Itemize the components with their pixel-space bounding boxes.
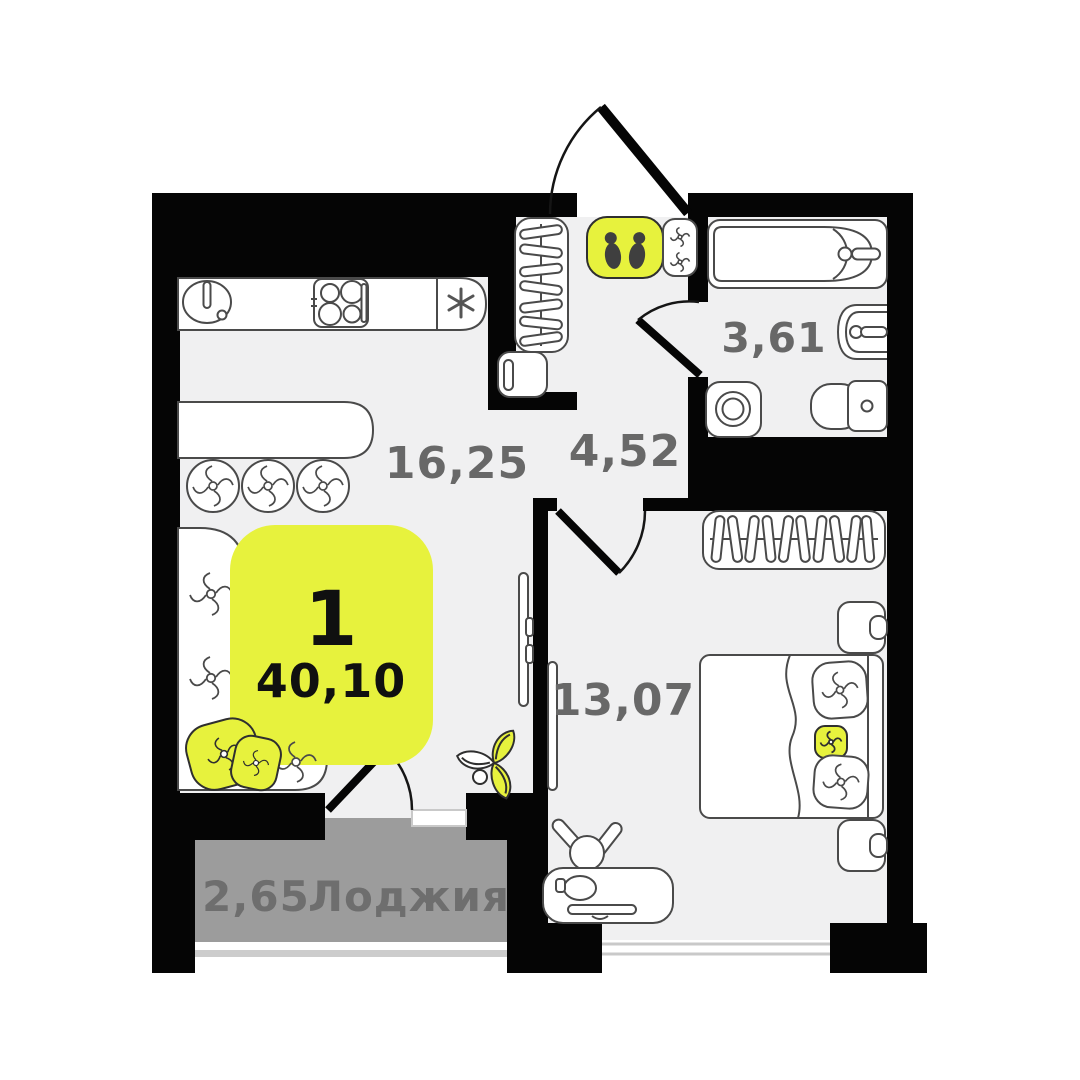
loggia-area-label: 2,65 xyxy=(202,872,310,921)
toilet-icon xyxy=(811,381,887,431)
floor-plan-page: 1 40,10 xyxy=(0,0,1080,1080)
wall-bedroom-bottom-left xyxy=(507,923,602,973)
yellow-bed-pillow-icon xyxy=(815,726,847,758)
living-tv-icon xyxy=(519,573,528,706)
hallway-area-label: 4,52 xyxy=(569,426,682,477)
shelf-icon xyxy=(526,618,533,636)
kitchen-living-area-label: 16,25 xyxy=(385,438,529,489)
bar-table xyxy=(178,402,373,458)
wall-left xyxy=(152,193,180,840)
entry-mat xyxy=(587,217,663,278)
wall-loggia-bedroom-separator xyxy=(507,840,548,930)
wall-bottom-right-pier xyxy=(830,923,927,973)
wall-bedroom-top xyxy=(643,498,887,511)
desk-icon xyxy=(543,868,673,923)
wardrobe-icon xyxy=(703,511,885,569)
coat-closet xyxy=(515,218,568,352)
wall-living-bottom-left xyxy=(152,793,325,840)
bathtub-icon xyxy=(708,220,887,288)
bathroom-area-label: 3,61 xyxy=(721,314,826,362)
nightstand xyxy=(838,820,887,871)
badge-total-area: 40,10 xyxy=(256,654,407,708)
bedroom-area-label: 13,07 xyxy=(551,675,695,726)
floor-plan-svg: 1 40,10 xyxy=(0,0,1080,1080)
dining-bar xyxy=(178,402,373,512)
wall-right xyxy=(887,193,913,923)
bed-icon xyxy=(700,655,883,818)
bar-stools xyxy=(187,460,349,512)
loggia-glazing-line xyxy=(195,950,507,957)
wall-living-bottom-right xyxy=(466,793,533,840)
shoe-bench xyxy=(498,352,547,397)
bedroom-window xyxy=(602,944,830,954)
badge-rooms-count: 1 xyxy=(305,574,358,663)
loggia-window xyxy=(412,810,466,826)
loggia-name-label: Лоджия xyxy=(308,872,510,921)
kitchen-area xyxy=(178,278,486,330)
area-badge: 1 40,10 xyxy=(230,525,433,765)
bed-pillow-icon xyxy=(811,660,869,720)
bed-pillow-icon xyxy=(812,754,869,810)
shelf-icon xyxy=(526,645,533,663)
washing-machine-icon xyxy=(706,382,761,437)
wall-top-closet xyxy=(516,193,577,217)
entry-pouf xyxy=(663,219,697,276)
wall-top-thick xyxy=(152,193,516,277)
stove-icon xyxy=(311,279,368,327)
wall-bathroom-bottom xyxy=(688,437,887,498)
nightstand xyxy=(838,602,887,653)
washbasin-icon xyxy=(838,305,887,359)
sink-icon xyxy=(183,281,231,323)
wall-top-right xyxy=(688,193,913,217)
